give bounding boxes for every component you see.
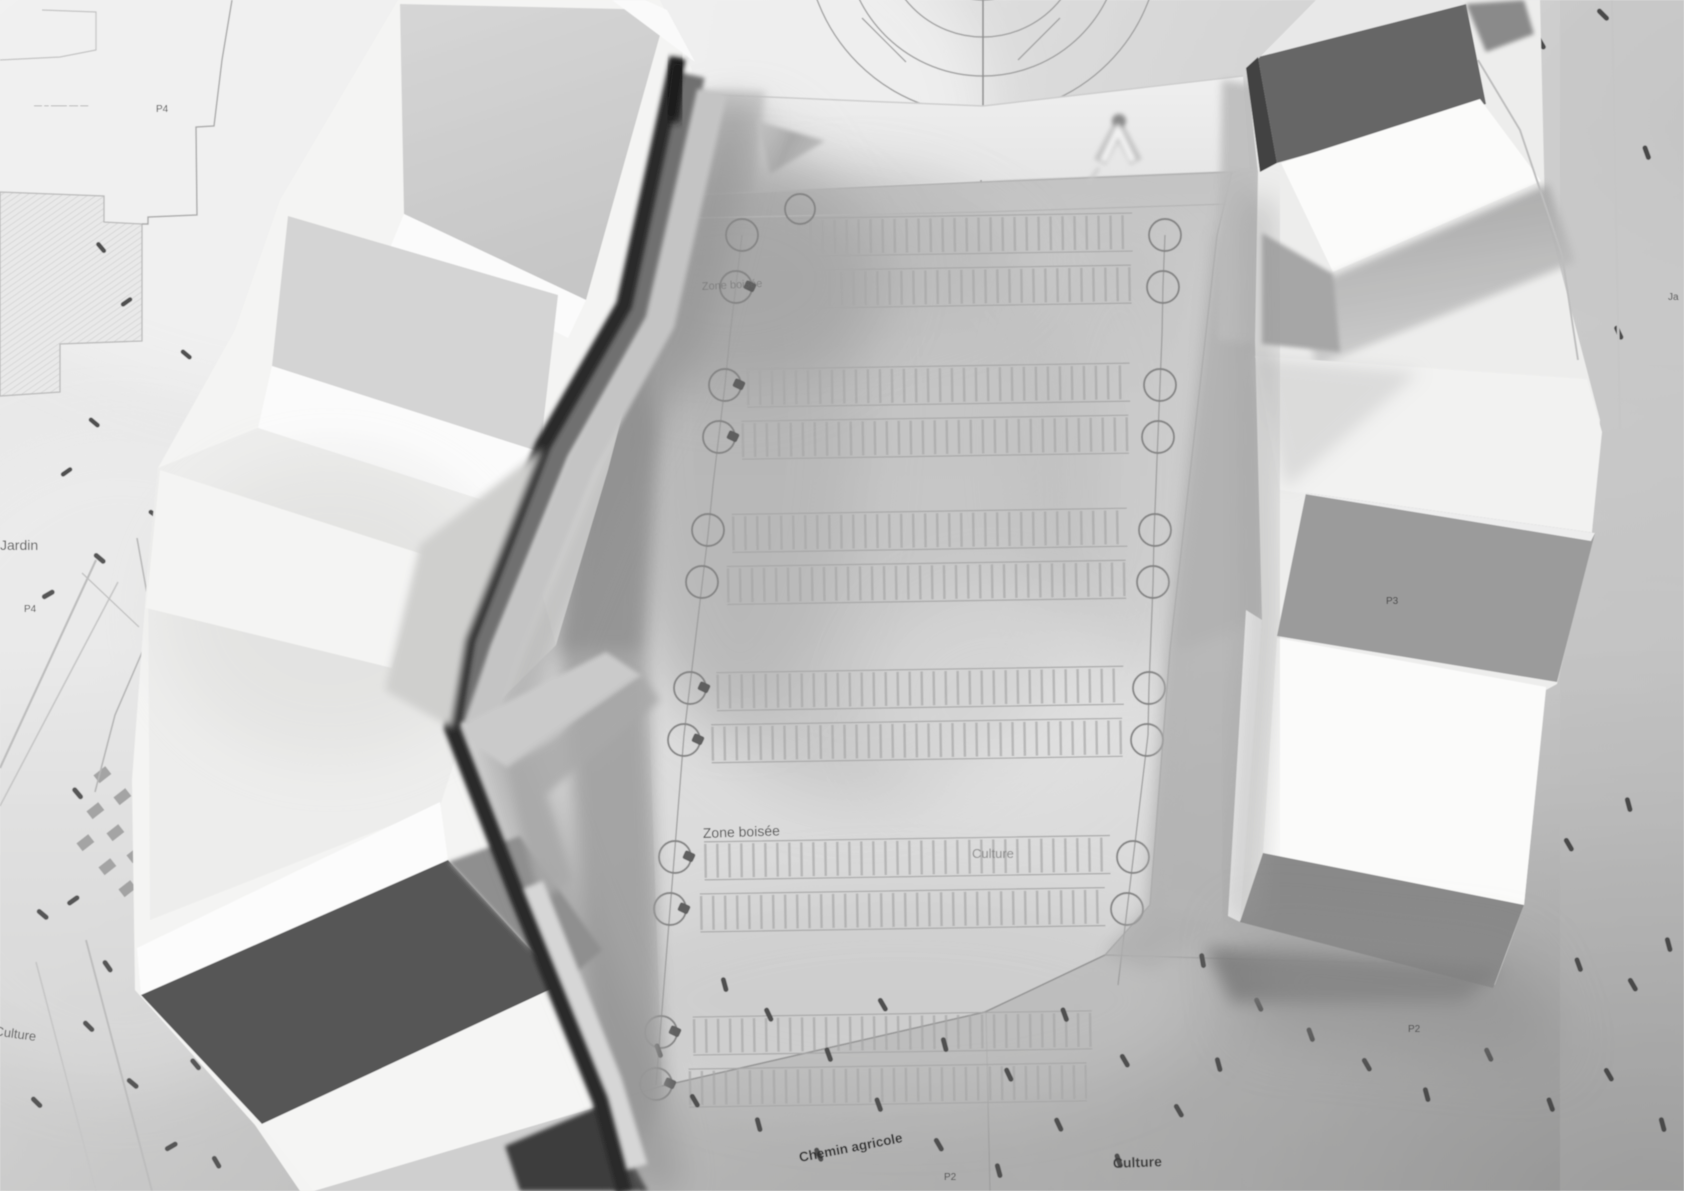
svg-text:Culture: Culture (1113, 1153, 1163, 1171)
svg-text:Culture: Culture (972, 846, 1014, 861)
svg-text:P4: P4 (156, 104, 169, 115)
svg-text:— – —— –– —: — – —— –– — (34, 101, 88, 110)
svg-text:Jardin: Jardin (0, 537, 38, 553)
svg-text:P2: P2 (1408, 1024, 1421, 1035)
svg-text:P4: P4 (24, 604, 37, 615)
svg-text:P3: P3 (1386, 596, 1399, 607)
svg-text:Zone boisée: Zone boisée (703, 822, 781, 841)
svg-text:Ja: Ja (1668, 292, 1679, 303)
svg-text:P2: P2 (944, 1172, 957, 1183)
